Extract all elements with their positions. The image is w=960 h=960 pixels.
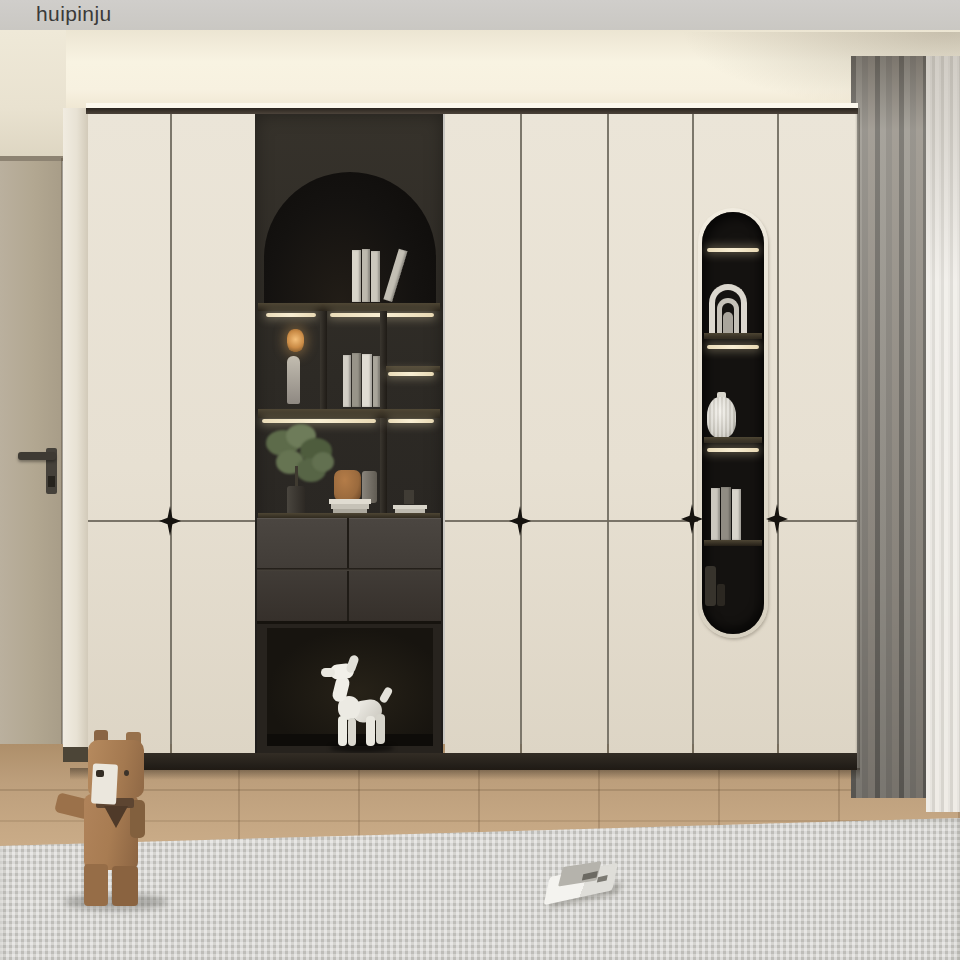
bear-eye xyxy=(124,770,129,776)
wardrobe-side-base xyxy=(63,747,88,762)
living-room-scene: huipinju xyxy=(0,0,960,960)
book xyxy=(352,250,361,302)
wardrobe-door-panel xyxy=(522,114,607,755)
balloon-dog-sculpture xyxy=(376,714,385,744)
drawer-seam xyxy=(347,518,349,624)
table-lamp xyxy=(287,329,304,352)
plant-leaves xyxy=(312,452,334,472)
bear-figurine xyxy=(84,864,108,906)
door-seam xyxy=(777,114,779,755)
balloon-dog-sculpture xyxy=(366,716,375,746)
wardrobe-door-panel xyxy=(88,114,170,755)
drawers xyxy=(257,518,441,624)
shelf xyxy=(704,437,762,443)
book xyxy=(721,487,731,540)
led-strip xyxy=(707,345,759,349)
book xyxy=(373,356,380,407)
door-seam xyxy=(692,114,694,755)
wardrobe-side-panel xyxy=(63,108,88,754)
led-strip xyxy=(388,372,434,376)
door-seam xyxy=(170,114,172,755)
shelf xyxy=(704,540,762,546)
door-seam xyxy=(520,114,522,755)
door-seam-horizontal xyxy=(445,520,857,522)
led-strip xyxy=(707,448,759,452)
shelf xyxy=(258,409,440,418)
bear-figurine xyxy=(112,866,138,906)
figurine xyxy=(287,356,300,404)
small-dark-object xyxy=(404,490,414,504)
book xyxy=(732,489,741,540)
wardrobe-door-panel xyxy=(445,114,520,755)
door-keyhole xyxy=(48,476,55,487)
book xyxy=(711,488,720,540)
bottle xyxy=(717,584,725,606)
floor-plank-seam xyxy=(0,789,960,791)
shelf xyxy=(704,333,762,339)
wardrobe-top-trim xyxy=(86,107,858,114)
led-strip xyxy=(707,248,759,252)
bear-muzzle xyxy=(91,763,118,804)
left-wall xyxy=(0,30,66,160)
book xyxy=(343,355,351,407)
wardrobe-right-edge xyxy=(855,108,860,770)
wardrobe-floor-shadow xyxy=(70,768,860,780)
wardrobe-door-panel xyxy=(609,114,692,755)
led-strip xyxy=(262,419,376,423)
curtain-sheer xyxy=(926,56,960,812)
balloon-dog-sculpture xyxy=(348,718,356,746)
cove-highlight xyxy=(86,103,858,108)
book xyxy=(371,251,380,302)
door-seam xyxy=(607,114,609,755)
led-strip xyxy=(266,313,316,317)
bear-nose xyxy=(96,770,104,777)
door-handle xyxy=(18,452,56,460)
balloon-dog-sculpture xyxy=(338,716,347,746)
balloon-dog-sculpture xyxy=(321,668,335,677)
watermark: huipinju xyxy=(36,2,112,26)
book xyxy=(352,353,361,407)
book xyxy=(362,354,372,407)
drawer-seam xyxy=(257,568,441,571)
shelf-divider xyxy=(320,311,327,411)
book xyxy=(362,249,370,302)
wardrobe-door-panel xyxy=(779,114,857,755)
ceiling-strip xyxy=(0,0,960,32)
arch-ornament xyxy=(723,312,733,333)
wardrobe-door-panel xyxy=(172,114,255,755)
shelf xyxy=(258,303,440,311)
bottle xyxy=(705,566,716,606)
led-strip xyxy=(388,419,434,423)
plant-vase xyxy=(287,486,305,516)
ribbed-vase xyxy=(707,397,736,438)
